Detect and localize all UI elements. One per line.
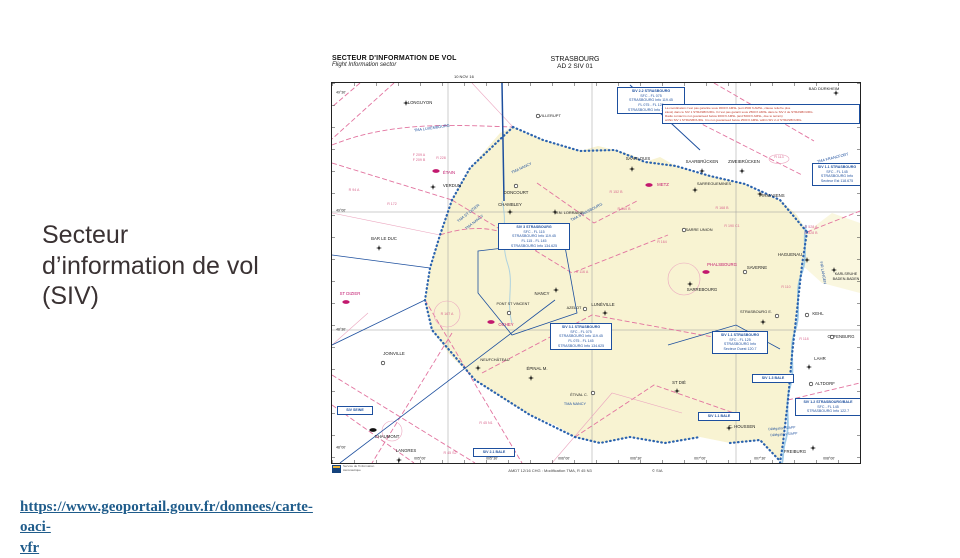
map-label: 008°00' [823,457,835,461]
map-label: R 118 [799,338,808,342]
source-hyperlink-line1[interactable]: https://www.geoportail.gouv.fr/donnees/c… [20,497,340,538]
frame-ticks-top [332,83,860,86]
map-label: ALTDORF [815,382,835,386]
map-label: R 172 [387,203,397,207]
civil-aerodrome-icon [687,281,693,287]
civil-aerodrome-icon [831,267,837,273]
map-info-box: La coordination n'est pas garantie sous … [662,104,860,124]
civil-aerodrome-icon [403,100,409,106]
map-label: SARRE UNION [685,228,712,232]
map-info-box: SIV SEINE [337,406,373,415]
slide: { "slide": { "title_lines": ["Secteur", … [0,0,960,540]
map-label: NANCY [534,292,549,296]
map-info-box: SIV 2.1 BALE [473,448,515,457]
map-label: CHAMBLEY [498,203,522,207]
civil-aerodrome-icon [810,445,816,451]
aeronautical-chart: SECTEUR D'INFORMATION DE VOL Flight Info… [330,55,862,481]
map-label: R 164 [657,241,667,245]
source-hyperlink-line2[interactable]: vfr [20,538,340,558]
airfield-circle-icon [830,335,835,340]
military-aerodrome-icon [487,320,495,325]
map-label: R 45 N1 [479,422,492,426]
map-label: C. HOUSSEN [729,425,756,429]
civil-aerodrome-icon [757,191,763,197]
page-title-line1: Secteur [42,220,302,251]
civil-aerodrome-icon [552,209,558,215]
map-label: ÉPINAL M. [526,367,547,371]
page-title-line2: d’information de vol [42,251,302,282]
map-label: ZWEIBRÜCKEN [728,160,760,164]
copyright: © SIA [652,468,663,473]
map-label: STRASBOURG E. [740,310,772,314]
map-label: D 528 B [805,232,818,236]
map-info-box: SIV 3.1 STRASBOURGSFC - FL 075STRASBOURG… [550,323,612,350]
map-label: KEHL [812,312,823,316]
civil-aerodrome-icon [507,209,513,215]
civil-aerodrome-icon [806,364,812,370]
military-aerodrome-icon [702,270,710,275]
airfield-circle-icon [775,314,780,319]
map-label: R 45 S2 [444,452,457,456]
map-label: HAGUENAU [778,253,802,257]
map-label: R 152 B [610,191,623,195]
map-info-box: SIV 1.2 STRASBOURG/BALESFC - FL 145STRAS… [795,398,861,416]
airfield-circle-icon [583,307,588,312]
map-label: TMA NANCY [564,403,586,407]
airfield-circle-icon [591,391,596,396]
chart-region: STRASBOURG [530,56,620,63]
map-label: R 167 A [441,313,454,317]
map-label: DONCOURT [504,191,529,195]
civil-aerodrome-icon [692,187,698,193]
map-info-box: SIV 1.3 BALE [752,374,794,383]
map-label: 005°00' [414,457,426,461]
map-label: R 113 [774,156,783,160]
frame-ticks-left [332,83,335,463]
aerodrome-icon [369,428,377,433]
map-label: ÉTIVAL C. [570,394,588,398]
map-label: SAARBRÜCKEN [686,160,719,164]
airfield-circle-icon [381,361,386,366]
civil-aerodrome-icon [739,168,745,174]
map-label: 006°30' [630,457,642,461]
map-label: CHAUMONT [375,435,400,439]
civil-aerodrome-icon [553,287,559,293]
map-label: METZ [657,183,669,187]
military-aerodrome-icon [342,300,350,305]
map-label: 006°00' [558,457,570,461]
civil-aerodrome-icon [629,166,635,172]
chart-code: AD 2 SIV 01 [530,63,620,70]
map-label: BAR LE DUC [371,237,397,241]
map-label: R 190 C1 [724,225,739,229]
military-aerodrome-icon [432,169,440,174]
sia-logo-mark [332,465,341,473]
civil-aerodrome-icon [833,90,839,96]
civil-aerodrome-icon [376,245,382,251]
page-title-line3: (SIV) [42,281,302,312]
airfield-circle-icon [536,114,541,119]
map-info-box: SIV 3 STRASBOURGSFC - FL 115STRASBOURG I… [498,223,570,250]
map-label: ST DIÉ [672,381,686,385]
map-label: LAHR [814,357,825,361]
map-label: R 228 [436,157,446,161]
map-label: 005°30' [486,457,498,461]
map-label: LANGRES [396,449,417,453]
civil-aerodrome-icon [396,457,402,463]
map-label: LONGUYON [408,101,433,105]
map-canvas: 49°30'49°00'48°30'48°00'005°00'005°30'00… [331,82,861,464]
airfield-circle-icon [809,382,814,387]
chart-region-block: STRASBOURG AD 2 SIV 01 [530,56,620,70]
military-aerodrome-icon [645,183,653,188]
civil-aerodrome-icon [699,168,705,174]
civil-aerodrome-icon [726,425,732,431]
chart-header: SECTEUR D'INFORMATION DE VOL Flight Info… [332,55,860,81]
map-label: F 209 B [413,159,426,163]
civil-aerodrome-icon [760,319,766,325]
frame-ticks-bottom [332,460,860,463]
map-label: R 116 A [576,271,589,275]
civil-aerodrome-icon [674,388,680,394]
map-info-box: SIV 1.1 STRASBOURGSFC - FL 145STRASBOURG… [812,163,861,186]
map-label: PIRMASENS [759,194,784,198]
map-label: 48°30' [336,328,346,332]
map-label: R 110 [781,286,790,290]
civil-aerodrome-icon [430,184,436,190]
map-label: NEUFCHÂTEAU [480,358,509,362]
map-label: FREIBURG [784,450,806,454]
airfield-circle-icon [514,184,519,189]
civil-aerodrome-icon [475,365,481,371]
map-label: VILLERUPT [539,114,561,118]
chart-footer: Service de l'Information Aéronautique AM… [330,465,862,481]
airfield-circle-icon [743,270,748,275]
map-label: PHALSBOURG [707,263,737,267]
map-label: BADEN-BADEN [833,278,860,282]
map-label: D 528 A [805,226,818,230]
map-label: 49°30' [336,91,346,95]
chart-date: 10 NOV 16 [454,74,474,79]
map-label: 007°30' [754,457,766,461]
civil-aerodrome-icon [528,375,534,381]
amendment-note: AMDT 12/16 CHG : Modification TMA, R 45 … [420,468,680,473]
map-label: SAARLOUIS [626,157,651,161]
map-label: SARREGUEMINES [697,182,731,186]
sia-logo-text: Service de l'Information Aéronautique [343,465,374,472]
siv-sector-fill [425,127,807,461]
map-linework [332,83,860,463]
sia-logo: Service de l'Information Aéronautique [332,465,374,473]
airfield-circle-icon [682,228,687,233]
source-hyperlink[interactable]: https://www.geoportail.gouv.fr/donnees/c… [20,497,340,558]
airfield-circle-icon [805,313,810,318]
map-info-box: SIV 1.1 STRASBOURGSFC - FL 125STRASBOURG… [712,331,768,354]
map-label: PONT ST VINCENT [496,303,529,307]
sia-logo-line2: Aéronautique [343,469,374,473]
map-label: ST DIZIER [340,292,361,296]
map-label: SARREBOURG [687,288,718,292]
map-label: VERDUN [443,184,461,188]
map-label: SAVERNE [747,266,767,270]
map-label: 007°00' [694,457,706,461]
page-title: Secteur d’information de vol (SIV) [42,220,302,312]
map-label: R 160 B [618,208,631,212]
map-label: AZELOT [567,307,582,311]
map-info-box: SIV 1.1 BALE [698,412,740,421]
map-label: R 94 A [349,189,360,193]
map-label: 49°00' [336,209,346,213]
map-label: ÉTAIN [443,171,455,175]
map-label: LUNÉVILLE [591,303,614,307]
map-label: JOINVILLE [383,352,405,356]
airfield-circle-icon [507,311,512,316]
civil-aerodrome-icon [804,257,810,263]
map-label: 48°00' [336,446,346,450]
civil-aerodrome-icon [602,310,608,316]
map-label: R 168 B [716,207,729,211]
map-label: OCHEY [498,323,513,327]
